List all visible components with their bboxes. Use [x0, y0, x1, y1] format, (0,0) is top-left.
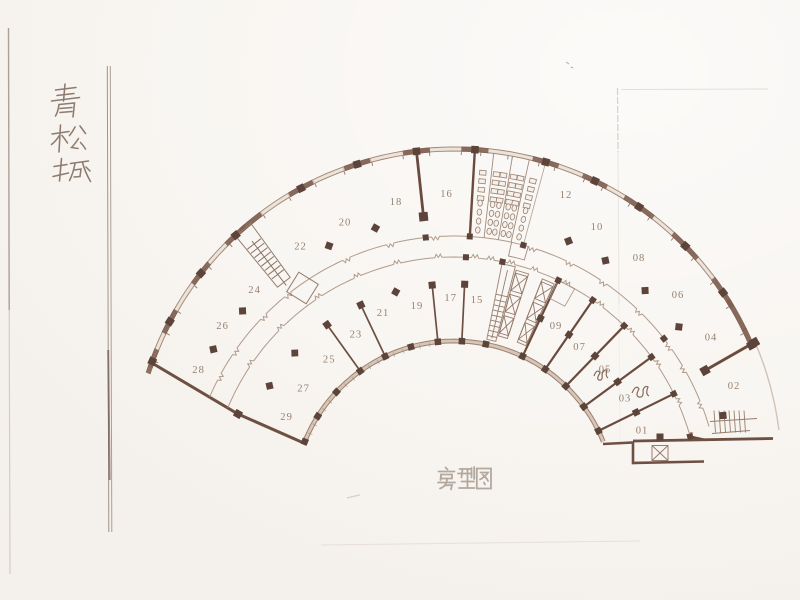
svg-text:29: 29 — [280, 412, 293, 423]
svg-text:26: 26 — [216, 321, 229, 332]
svg-text:25: 25 — [323, 354, 336, 365]
svg-text:01: 01 — [636, 426, 649, 437]
svg-text:07: 07 — [573, 342, 586, 353]
svg-text:08: 08 — [633, 253, 646, 264]
svg-text:09: 09 — [550, 321, 563, 332]
svg-text:02: 02 — [728, 381, 741, 392]
svg-text:15: 15 — [471, 295, 484, 306]
svg-text:10: 10 — [591, 222, 604, 233]
svg-text:28: 28 — [192, 365, 205, 376]
svg-text:21: 21 — [377, 308, 390, 319]
svg-text:12: 12 — [560, 190, 573, 201]
svg-text:18: 18 — [390, 197, 403, 208]
svg-text:03: 03 — [619, 394, 632, 405]
svg-text:17: 17 — [444, 293, 457, 304]
svg-text:24: 24 — [248, 285, 261, 296]
svg-text:06: 06 — [672, 290, 685, 301]
svg-text:20: 20 — [339, 217, 352, 228]
svg-text:23: 23 — [350, 329, 363, 340]
svg-text:04: 04 — [705, 332, 718, 343]
svg-text:19: 19 — [411, 301, 424, 312]
svg-text:16: 16 — [440, 189, 453, 200]
svg-text:22: 22 — [294, 241, 307, 252]
svg-text:27: 27 — [297, 384, 310, 395]
